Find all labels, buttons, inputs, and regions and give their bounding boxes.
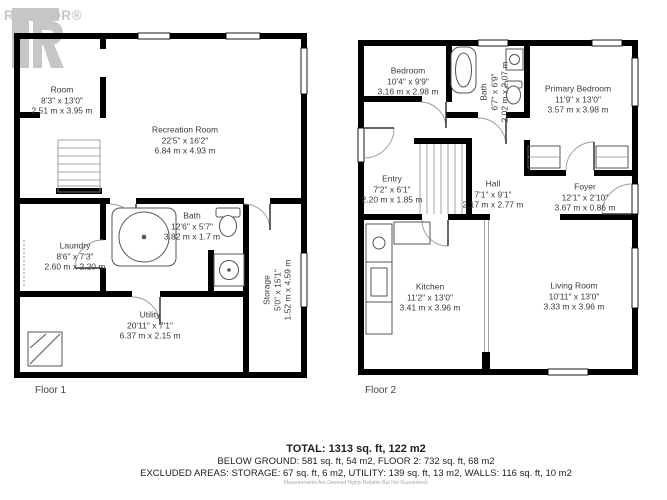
room-label-kitchen: Kitchen 11'2" x 13'0" 3.41 m x 3.96 m	[400, 281, 461, 313]
room-label-storage: Storage 5'0" x 15'1" 1.52 m x 4.59 m	[261, 260, 293, 321]
kitchen-counter	[366, 222, 430, 334]
disclaimer: Measurements Are Deemed Highly Reliable …	[40, 479, 667, 487]
room-label-bedroom: Bedroom 10'4" x 9'9" 3.16 m x 2.98 m	[378, 65, 439, 97]
room-label-foyer: Foyer 12'1" x 2'10" 3.67 m x 0.86 m	[555, 181, 616, 213]
floor-areas: BELOW GROUND: 581 sq. ft, 54 m2, FLOOR 2…	[40, 456, 667, 468]
room-label-hall: Hall 7'1" x 9'1" 2.17 m x 2.77 m	[463, 178, 524, 210]
excluded-areas: EXCLUDED AREAS: STORAGE: 67 sq. ft, 6 m2…	[40, 468, 667, 480]
stairs-icon	[58, 140, 100, 192]
sink-icon	[214, 254, 244, 286]
room-label-bath-floor1: Bath 12'6" x 5'7" 3.82 m x 1.7 m	[164, 210, 220, 242]
floorplan-canvas: REALTOR®	[0, 0, 667, 500]
room-label-living-room: Living Room 10'11" x 13'0" 3.33 m x 3.96…	[544, 280, 605, 312]
room-label-entry: Entry 7'2" x 6'1" 2.20 m x 1.85 m	[362, 173, 423, 205]
water-heater-icon	[28, 332, 62, 366]
area-summary: TOTAL: 1313 sq. ft, 122 m2 BELOW GROUND:…	[40, 443, 667, 487]
room-label-bath-floor2: Bath 6'7" x 6'9" 2.02 m x 2.07 m	[478, 62, 510, 123]
room-label-laundry: Laundry 8'6" x 7'3" 2.60 m x 2.20 m	[45, 240, 106, 272]
stairs-icon	[420, 144, 462, 214]
floor1-caption: Floor 1	[35, 385, 66, 396]
bathtub-icon	[451, 47, 476, 93]
room-label-room: Room 8'3" x 13'0" 2.51 m x 3.95 m	[32, 84, 93, 116]
room-label-primary-bedroom: Primary Bedroom 11'9" x 13'0" 3.57 m x 3…	[545, 83, 611, 115]
closet	[528, 146, 628, 168]
room-label-utility: Utility 20'11" x 7'1" 6.37 m x 2.15 m	[120, 309, 181, 341]
room-label-recreation-room: Recreation Room 22'5" x 16'2" 6.84 m x 4…	[152, 124, 218, 156]
total-area: TOTAL: 1313 sq. ft, 122 m2	[40, 443, 667, 456]
room-divider	[485, 220, 489, 352]
floor2-caption: Floor 2	[365, 385, 396, 396]
